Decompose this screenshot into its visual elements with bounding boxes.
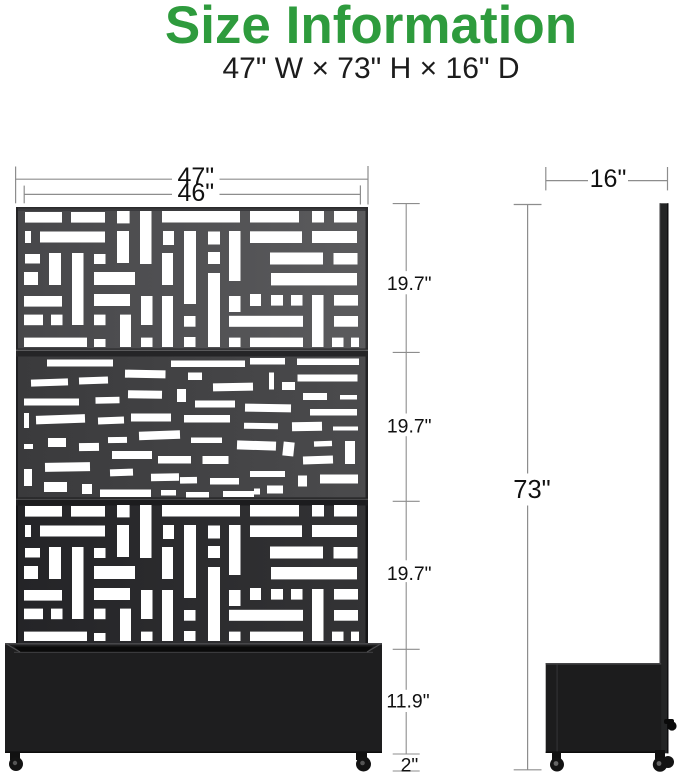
svg-text:19.7": 19.7" [387,273,432,295]
svg-text:73": 73" [513,476,550,504]
svg-text:46": 46" [177,179,214,207]
svg-text:2": 2" [401,754,419,776]
svg-text:19.7": 19.7" [387,563,432,585]
svg-text:11.9": 11.9" [386,691,429,713]
svg-text:16": 16" [590,165,627,193]
svg-text:19.7": 19.7" [387,416,432,438]
